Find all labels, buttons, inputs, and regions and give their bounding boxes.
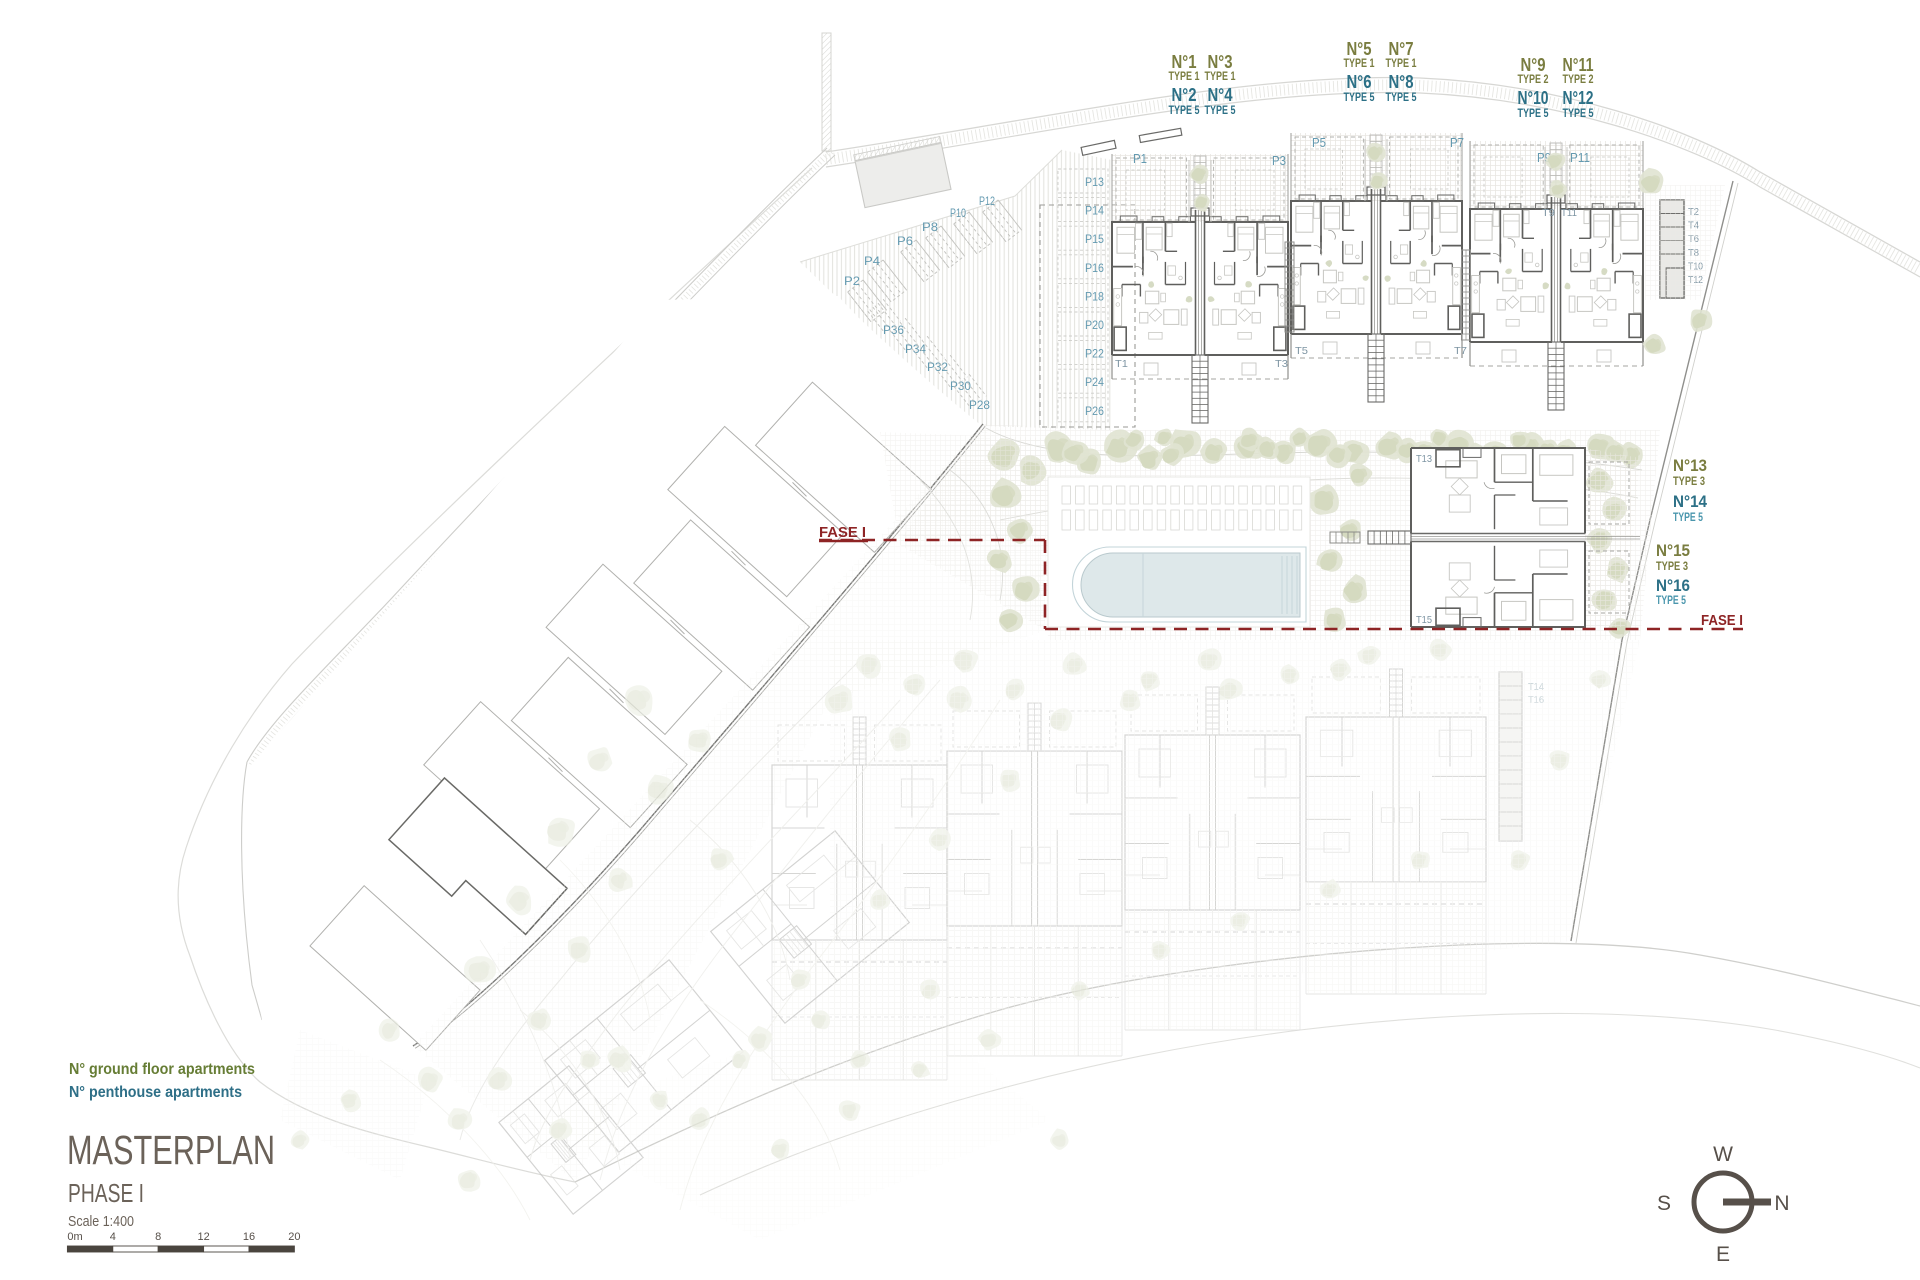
svg-text:N°4: N°4	[1208, 85, 1233, 105]
svg-text:N° penthouse apartments: N° penthouse apartments	[69, 1084, 242, 1101]
svg-text:T15: T15	[1416, 614, 1432, 626]
svg-text:P2: P2	[844, 276, 860, 288]
svg-text:TYPE 5: TYPE 5	[1563, 108, 1594, 120]
svg-text:N°5: N°5	[1347, 39, 1372, 59]
svg-text:P7: P7	[1450, 136, 1464, 150]
svg-text:TYPE 5: TYPE 5	[1386, 92, 1417, 104]
svg-text:P13: P13	[1085, 177, 1104, 189]
svg-text:TYPE 1: TYPE 1	[1386, 58, 1417, 70]
svg-text:T1: T1	[1115, 358, 1128, 370]
svg-text:N° ground floor apartments: N° ground floor apartments	[69, 1061, 255, 1078]
svg-text:P20: P20	[1085, 320, 1104, 332]
svg-text:P15: P15	[1085, 234, 1104, 246]
svg-text:N°2: N°2	[1172, 85, 1197, 105]
svg-text:N°13: N°13	[1673, 456, 1707, 475]
svg-text:S: S	[1657, 1192, 1671, 1215]
svg-text:TYPE 5: TYPE 5	[1518, 108, 1549, 120]
svg-text:N°14: N°14	[1673, 492, 1707, 511]
svg-text:TYPE 1: TYPE 1	[1169, 71, 1200, 83]
svg-text:TYPE 1: TYPE 1	[1205, 71, 1236, 83]
svg-text:TYPE 5: TYPE 5	[1344, 92, 1375, 104]
svg-text:T7: T7	[1454, 345, 1467, 357]
svg-text:TYPE 5: TYPE 5	[1169, 105, 1200, 117]
svg-text:P14: P14	[1085, 206, 1105, 218]
svg-text:FASE I: FASE I	[1701, 613, 1743, 629]
svg-text:P26: P26	[1085, 406, 1104, 418]
svg-text:TYPE 3: TYPE 3	[1656, 561, 1688, 573]
svg-text:P28: P28	[969, 400, 990, 412]
svg-text:N°10: N°10	[1518, 88, 1549, 108]
svg-text:N°12: N°12	[1563, 88, 1594, 108]
svg-text:P22: P22	[1085, 349, 1104, 361]
svg-text:TYPE 5: TYPE 5	[1673, 512, 1703, 524]
svg-text:P6: P6	[897, 236, 913, 248]
svg-text:N: N	[1774, 1192, 1789, 1215]
svg-text:E: E	[1716, 1243, 1730, 1266]
svg-text:P10: P10	[950, 208, 966, 220]
svg-text:16: 16	[243, 1231, 255, 1243]
svg-text:N°6: N°6	[1347, 72, 1372, 92]
svg-text:N°9: N°9	[1521, 55, 1546, 75]
svg-text:N°11: N°11	[1563, 55, 1594, 75]
svg-text:P32: P32	[927, 362, 948, 374]
svg-text:20: 20	[288, 1231, 300, 1243]
svg-text:N°7: N°7	[1389, 39, 1414, 59]
svg-text:4: 4	[110, 1231, 116, 1243]
svg-text:8: 8	[155, 1231, 161, 1243]
svg-text:P4: P4	[864, 256, 881, 268]
svg-text:Scale 1:400: Scale 1:400	[68, 1214, 134, 1230]
svg-text:TYPE 2: TYPE 2	[1518, 74, 1549, 86]
svg-text:TYPE 5: TYPE 5	[1656, 595, 1686, 607]
svg-text:12: 12	[197, 1231, 209, 1243]
svg-text:P12: P12	[979, 196, 995, 208]
svg-text:P3: P3	[1272, 154, 1286, 168]
svg-text:TYPE 1: TYPE 1	[1344, 58, 1375, 70]
svg-text:N°16: N°16	[1656, 576, 1690, 595]
svg-text:TYPE 5: TYPE 5	[1205, 105, 1236, 117]
svg-text:T13: T13	[1416, 453, 1432, 465]
svg-text:N°3: N°3	[1208, 52, 1233, 72]
svg-text:P1: P1	[1133, 152, 1147, 166]
svg-text:FASE I: FASE I	[819, 525, 866, 541]
svg-text:TYPE 3: TYPE 3	[1673, 476, 1705, 488]
svg-text:P18: P18	[1085, 291, 1104, 303]
svg-text:P8: P8	[922, 222, 938, 234]
svg-text:T3: T3	[1275, 358, 1288, 370]
svg-text:P34: P34	[905, 344, 927, 356]
svg-text:P16: P16	[1085, 263, 1104, 275]
svg-text:TYPE 2: TYPE 2	[1563, 74, 1594, 86]
svg-text:N°15: N°15	[1656, 541, 1690, 560]
svg-text:P11: P11	[1570, 151, 1590, 165]
svg-text:N°1: N°1	[1172, 52, 1197, 72]
svg-text:MASTERPLAN: MASTERPLAN	[67, 1127, 275, 1173]
svg-text:T5: T5	[1295, 345, 1308, 357]
svg-text:P24: P24	[1085, 377, 1105, 389]
svg-text:0m: 0m	[67, 1231, 82, 1243]
svg-text:W: W	[1713, 1143, 1733, 1166]
svg-text:PHASE I: PHASE I	[68, 1178, 144, 1208]
svg-text:P5: P5	[1312, 136, 1326, 150]
svg-text:T11: T11	[1561, 207, 1577, 219]
svg-text:N°8: N°8	[1389, 72, 1414, 92]
svg-text:T9: T9	[1542, 207, 1555, 219]
